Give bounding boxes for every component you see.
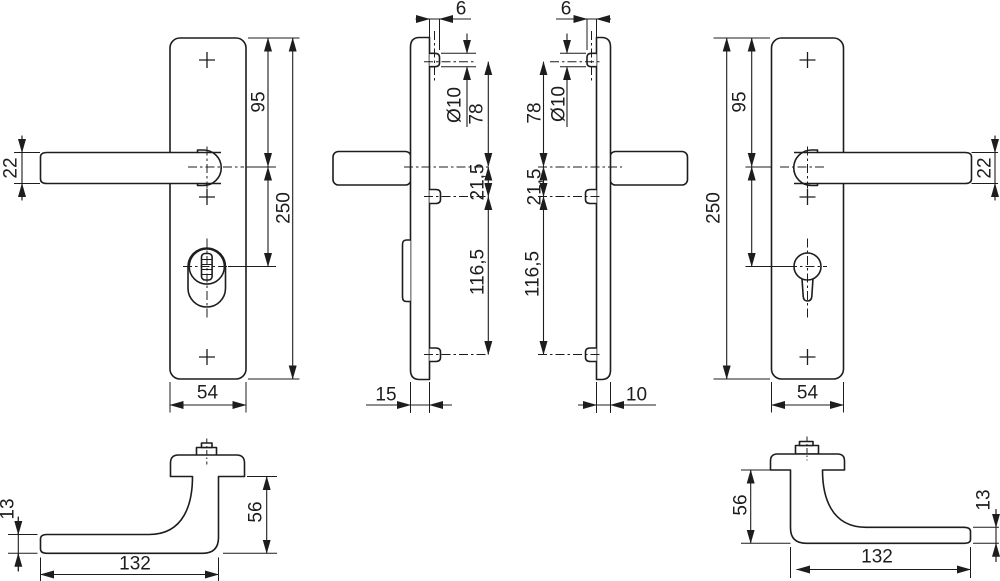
dim-label-screw-spacing-sr: 116,5 (523, 251, 542, 297)
dim-label-plate-depth-sl: 15 (375, 386, 396, 405)
handle-top-view-right (791, 470, 971, 543)
lever-side-right (610, 152, 688, 186)
dim-label-lever-thickness-right: 22 (975, 157, 994, 178)
dim-label-axis-to-screw-sl: 21,5 (468, 163, 487, 200)
dim-label-plate-height-right: 250 (705, 192, 724, 224)
backplate-side-left (411, 38, 430, 380)
handle-top-view-left (41, 477, 219, 554)
dim-label-screw-diameter-sr: Ø10 (549, 86, 568, 122)
dim-label-plate-height-left: 250 (274, 192, 293, 224)
dim-label-screw-spacing-sl: 116,5 (469, 249, 488, 295)
dim-label-screw-standout-sl: 6 (456, 0, 467, 19)
dim-label-axis-to-screw-sr: 21,5 (525, 169, 544, 206)
cylinder-cover-side (403, 240, 411, 302)
side-left-view (333, 19, 489, 413)
front-right-view (714, 38, 999, 413)
dim-label-plate-width-left: 54 (197, 384, 218, 403)
dim-label-projection-tr: 56 (732, 494, 751, 515)
technical-drawing-canvas: 22 95 250 54 6 Ø10 78 21,5 116,5 15 6 Ø1… (0, 0, 1000, 581)
drawing-linework (0, 0, 1000, 581)
dim-label-grip-depth-tl: 13 (0, 498, 17, 519)
lever-side-left (333, 152, 411, 186)
dim-label-handle-length-tl: 132 (119, 555, 151, 574)
side-right-view (538, 19, 688, 413)
dim-label-screw-standout-sr: 6 (561, 0, 572, 19)
lever-handle-front-left (41, 153, 222, 184)
dim-label-lever-thickness-left: 22 (1, 157, 20, 178)
rosette-top-view (171, 455, 245, 477)
lever-handle-front-right (794, 153, 972, 184)
dim-label-plate-width-right: 54 (797, 384, 818, 403)
backplate-side-right (597, 38, 611, 380)
dim-label-top-to-handle-left: 95 (250, 91, 269, 112)
dim-label-plate-depth-sr: 10 (626, 386, 647, 405)
dim-label-screw-diameter-sl: Ø10 (446, 87, 465, 123)
dim-label-handle-length-tr: 132 (861, 548, 893, 567)
spindle-tip (800, 442, 814, 446)
backplate-front-left (170, 38, 246, 379)
dim-label-projection-tl: 56 (247, 501, 266, 522)
dim-label-grip-depth-tr: 13 (975, 489, 994, 510)
dim-label-top-to-handle-right: 95 (730, 91, 749, 112)
dim-label-screw-to-axis-sr: 78 (525, 102, 544, 123)
backplate-front-right (772, 38, 844, 379)
front-right-dimensions (714, 38, 999, 413)
dim-label-screw-to-axis-sl: 78 (468, 103, 487, 124)
